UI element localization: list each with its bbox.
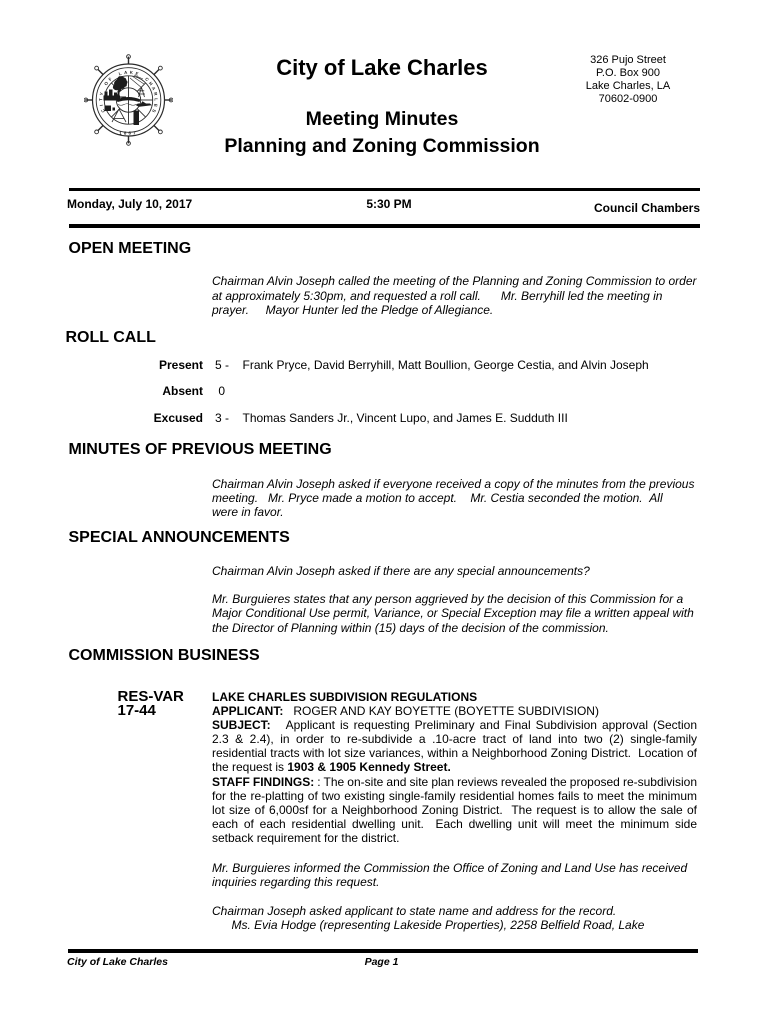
svg-text:1867: 1867 [119,131,138,136]
svg-text:Y: Y [99,92,105,96]
svg-text:H: H [148,81,154,87]
svg-text:R: R [153,92,159,97]
svg-text:I: I [99,104,104,106]
svg-text:L: L [154,98,159,101]
svg-text:A: A [151,86,157,92]
svg-text:E: E [153,103,158,107]
svg-text:T: T [98,98,103,101]
